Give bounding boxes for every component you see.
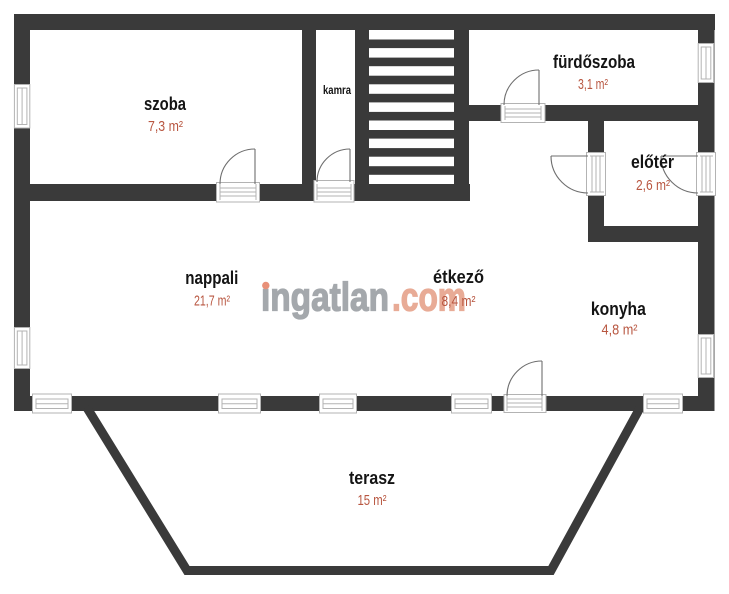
svg-text:2,6 m²: 2,6 m² xyxy=(636,178,670,194)
svg-text:szoba: szoba xyxy=(144,94,187,114)
svg-text:21,7 m²: 21,7 m² xyxy=(194,294,230,310)
svg-text:7,3 m²: 7,3 m² xyxy=(148,119,183,135)
svg-text:étkező: étkező xyxy=(433,267,484,287)
svg-text:8,4 m²: 8,4 m² xyxy=(442,294,476,310)
svg-text:előtér: előtér xyxy=(631,152,674,172)
svg-text:kamra: kamra xyxy=(323,83,351,97)
svg-text:3,1 m²: 3,1 m² xyxy=(578,77,608,93)
svg-text:nappali: nappali xyxy=(185,268,238,288)
svg-text:ıngatlan: ıngatlan xyxy=(261,276,389,320)
svg-text:fürdőszoba: fürdőszoba xyxy=(553,52,636,72)
svg-text:terasz: terasz xyxy=(349,468,395,488)
svg-text:4,8 m²: 4,8 m² xyxy=(602,323,638,339)
svg-text:15 m²: 15 m² xyxy=(358,493,387,509)
svg-text:konyha: konyha xyxy=(591,299,647,319)
